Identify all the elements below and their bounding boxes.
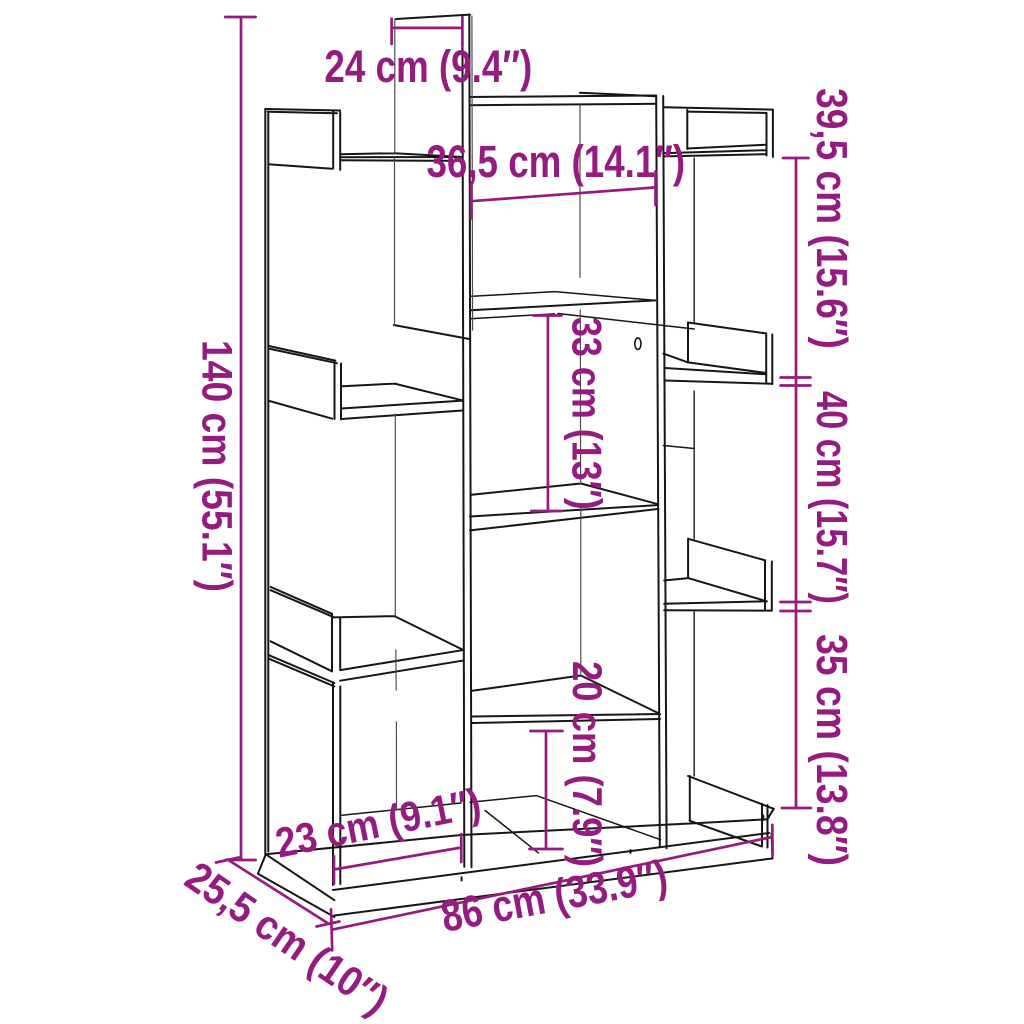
svg-text:33 cm (13″): 33 cm (13″) — [563, 317, 609, 510]
svg-text:36,5 cm (14.1″): 36,5 cm (14.1″) — [426, 136, 685, 186]
svg-text:24 cm (9.4″): 24 cm (9.4″) — [324, 41, 532, 91]
svg-text:20 cm (7.9″): 20 cm (7.9″) — [563, 661, 609, 867]
svg-text:35 cm (13.8″): 35 cm (13.8″) — [807, 634, 856, 866]
svg-text:39,5 cm (15.6″): 39,5 cm (15.6″) — [807, 88, 857, 349]
svg-text:140 cm (55.1″): 140 cm (55.1″) — [193, 340, 240, 592]
svg-text:40 cm (15.7″): 40 cm (15.7″) — [807, 391, 855, 604]
